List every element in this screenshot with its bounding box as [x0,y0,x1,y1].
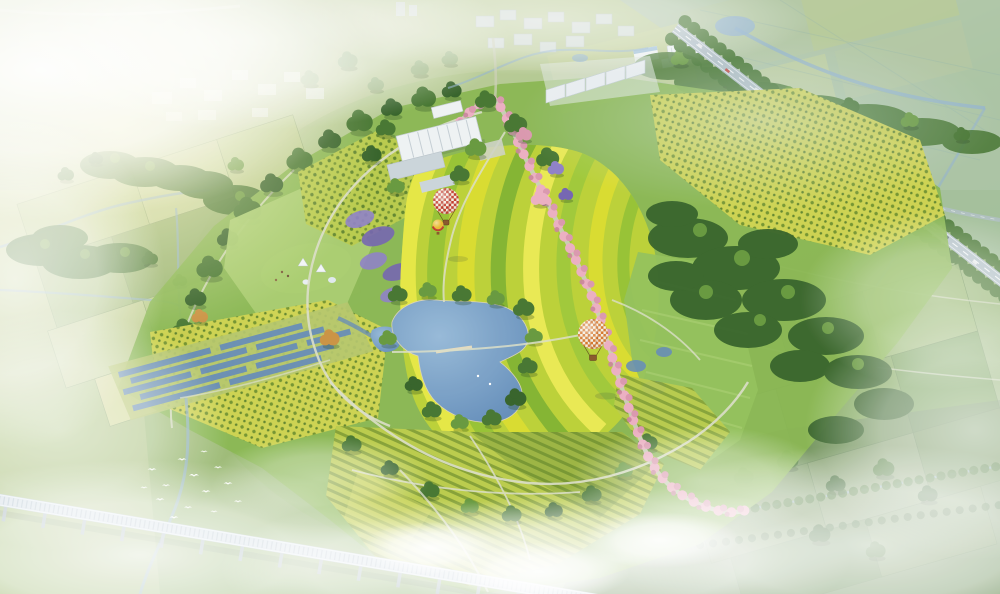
haze-veil [0,0,1000,594]
balloon-shading [578,319,608,349]
balloon-basket [443,220,449,225]
balloon-basket [437,232,440,235]
balloon-shadow [595,393,617,400]
balloon-shadow [448,256,468,262]
aerial-rendering-stage: Bird's-eye architectural rendering of an… [0,0,1000,594]
balloon-shading [433,188,459,214]
balloon-shading [433,220,444,231]
mist-layer [0,0,1000,594]
masterplan-rendering: Bird's-eye architectural rendering of an… [0,0,1000,594]
balloon-basket [590,355,597,361]
